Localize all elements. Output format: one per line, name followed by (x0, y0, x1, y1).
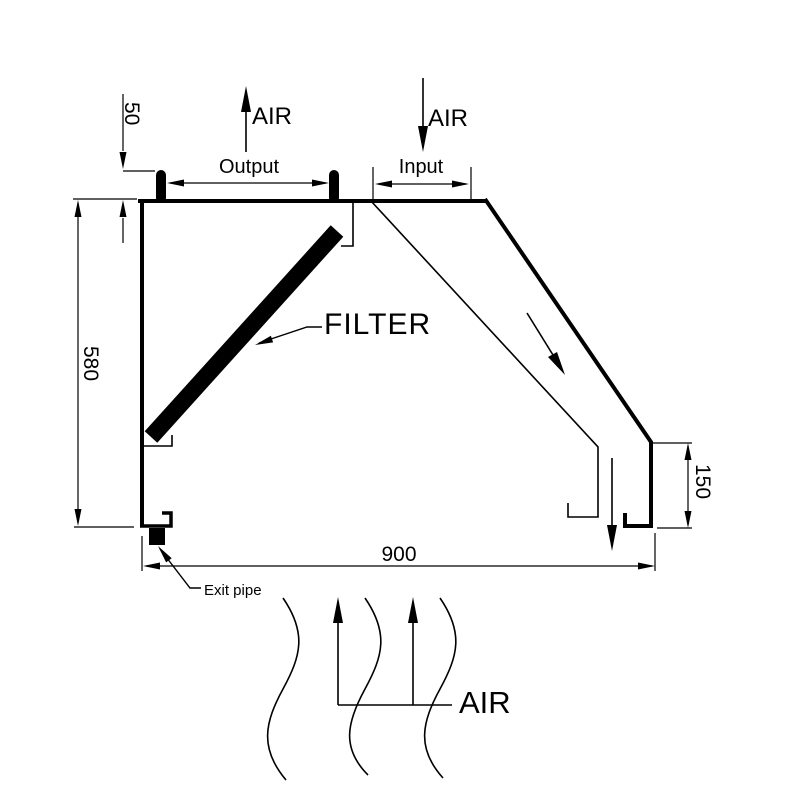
filter-bar (145, 225, 344, 442)
inner-slope-wall (371, 201, 598, 517)
input-span-arrow-right-icon (452, 181, 469, 188)
air-input-down-arrow-icon (418, 126, 428, 152)
dim-50-arrow-down-icon (120, 152, 127, 169)
channel-flow-arrow-line (527, 313, 553, 355)
filter-leader-arrow-icon (255, 336, 273, 345)
air-rising-label: AIR (459, 687, 511, 718)
dim-outlet-height: 150 (692, 464, 713, 499)
dim-150-arrow-bottom-icon (685, 511, 692, 528)
heat-waves (268, 598, 456, 780)
air-output-label: AIR (252, 105, 292, 129)
heat-wave-3 (425, 598, 456, 778)
hood-left-foot (140, 513, 171, 526)
output-span-lines (167, 180, 329, 187)
exit-pipe-leader-arrow-icon (158, 546, 172, 562)
dim-900-arrow-left-icon (143, 563, 160, 570)
heat-wave-2 (350, 598, 381, 775)
leader-lines (158, 327, 322, 588)
input-span-arrow-left-icon (375, 181, 392, 188)
dim-hood-height: 580 (80, 346, 101, 381)
output-label: Output (219, 157, 279, 177)
air-output-up-arrow-icon (241, 86, 251, 112)
rising-air-arrow-2-icon (408, 597, 418, 623)
channel-flow-arrow-icon (548, 352, 565, 375)
dim-outlet-height-lines (653, 443, 692, 528)
output-span-arrow-right-icon (312, 180, 329, 187)
filter-label: FILTER (324, 310, 431, 340)
hood-outer-slope-wall (485, 199, 651, 526)
dim-900-arrow-right-icon (638, 563, 655, 570)
heat-wave-1 (268, 598, 299, 780)
output-collar-left-stud (156, 170, 166, 203)
exhaust-hood-diagram: AIR AIR Output Input FILTER Exit pipe 50… (0, 0, 800, 800)
dim-150-arrow-top-icon (685, 443, 692, 460)
output-span-arrow-left-icon (167, 180, 184, 187)
dim-580-arrow-top-icon (75, 200, 82, 217)
filter-top-bracket (341, 201, 353, 246)
exit-pipe-label: Exit pipe (204, 583, 262, 598)
rising-air-arrow-1-icon (333, 597, 343, 623)
dim-collar-height: 50 (121, 102, 142, 125)
exit-pipe-stub (149, 528, 165, 545)
output-collar-right-stud (329, 170, 339, 203)
air-input-label: AIR (428, 107, 468, 131)
dim-50-arrow-up-icon (120, 200, 127, 217)
dim-580-arrow-bottom-icon (75, 509, 82, 526)
dim-hood-width: 900 (381, 544, 416, 565)
outlet-down-arrow-icon (607, 525, 617, 551)
input-label: Input (399, 157, 443, 177)
